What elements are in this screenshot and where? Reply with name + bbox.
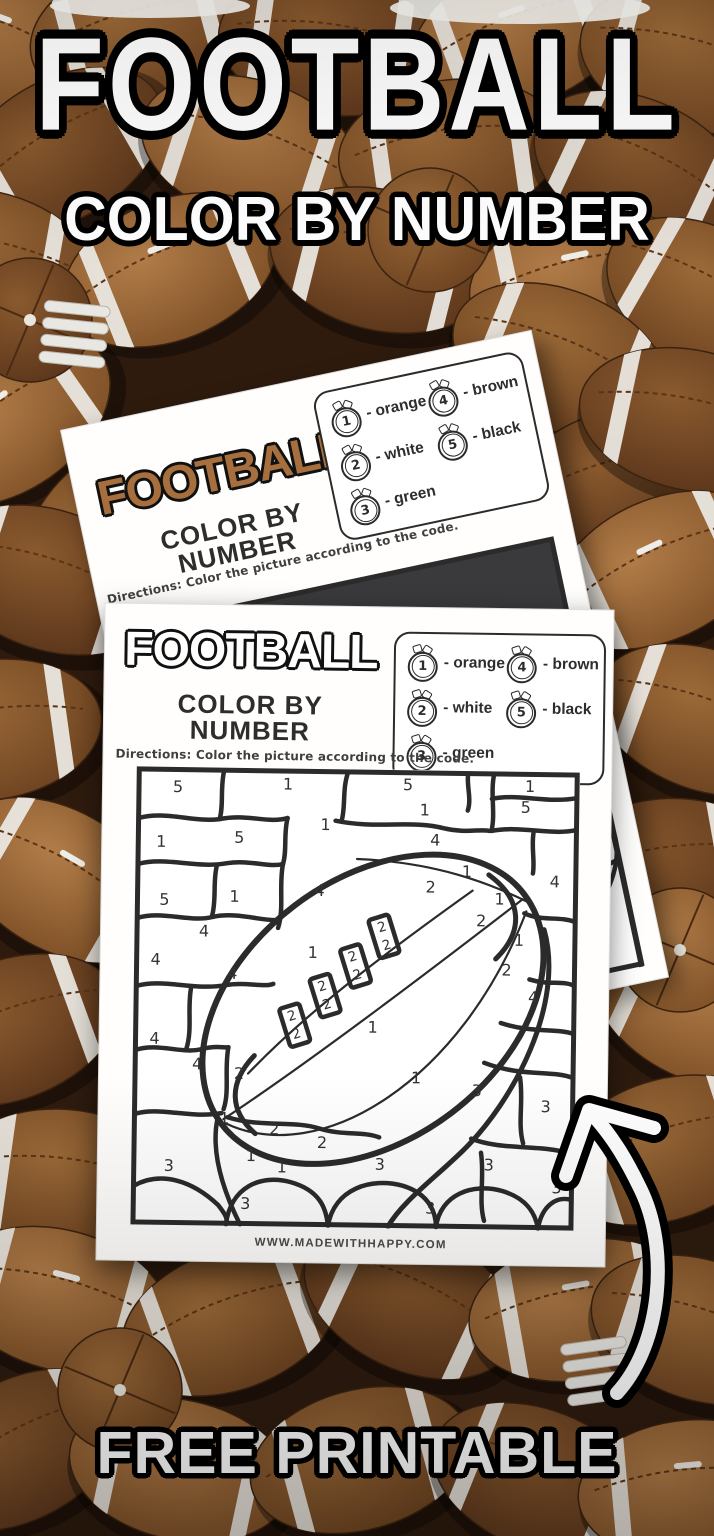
region-number: 3 [240,1194,250,1213]
region-number: 2 [269,1119,279,1138]
region-number: 1 [283,774,293,793]
stopwatch-icon: 5 [504,689,539,729]
region-number: 3 [540,1097,550,1116]
stopwatch-icon: 4 [422,374,464,420]
legend-item: 4 - brown [505,641,600,687]
stopwatch-icon: 4 [505,644,540,684]
region-number: 5 [403,775,413,794]
region-number: 2 [476,911,486,930]
region-number: 1 [229,887,239,906]
region-number: 1 [525,777,535,796]
region-number: 1 [514,931,524,950]
legend-item: 1 - orange [405,640,505,686]
region-number: 1 [494,889,504,908]
region-number: 1 [320,815,330,834]
region-number: 4 [149,1029,159,1048]
region-number: 1 [420,800,430,819]
region-number: 4 [192,1054,202,1073]
region-number: 4 [199,921,209,940]
region-number: 5 [521,798,531,817]
color-key-legend: 1 - orange 2 - white 3 - green 4 - brown… [311,350,552,543]
pin-graphic: FOOTBALL COLOR BY NUMBER FOOTBALL COLOR … [0,0,714,1536]
region-number: 3 [551,1178,561,1197]
stopwatch-icon: 1 [325,395,367,441]
region-number: 4 [227,964,237,983]
stopwatch-icon: 5 [431,419,473,465]
banner-footer: FREE PRINTABLE [0,1424,714,1483]
region-number: 4 [528,988,538,1007]
color-key-legend: 1 - orange 2 - white 3 - green 4 - brown… [392,632,606,786]
region-number: 3 [164,1156,174,1175]
region-number: 3 [472,1081,482,1100]
legend-item: 5 - black [504,686,599,732]
region-number: 4 [550,872,560,891]
region-number: 1 [462,862,472,881]
worksheet-front: FOOTBALL COLOR BY NUMBER 1 - orange 2 - … [95,602,614,1267]
region-number: 1 [411,1068,421,1087]
region-number: 2 [425,877,435,896]
region-number: 1 [156,832,166,851]
region-number: 5 [173,777,183,796]
region-number: 2 [501,961,511,980]
worksheet-subtitle: COLOR BY NUMBER [114,690,387,746]
region-number: 4 [430,831,440,850]
region-number: 5 [234,828,244,847]
legend-item: 2 - white [405,685,505,731]
region-number: 5 [159,890,169,909]
region-number: 2 [317,1133,327,1152]
stopwatch-icon: 2 [334,439,376,485]
region-number: 4 [314,881,324,900]
website-url: WWW.MADEWITHHAPPY.COM [97,1234,605,1253]
region-number: 1 [219,1109,229,1128]
stopwatch-icon: 2 [405,687,440,727]
worksheet-title: FOOTBALL [123,626,380,678]
banner-title: FOOTBALL [11,18,704,150]
stopwatch-icon: 3 [344,484,386,530]
region-number: 2 [234,1064,244,1083]
region-number: 3 [484,1155,494,1174]
coloring-picture: 5151151514142514124141244144213312211333… [130,766,580,1231]
region-number: 3 [425,1199,435,1218]
region-number: 1 [277,1157,287,1176]
stopwatch-icon: 1 [406,642,441,682]
banner-subtitle: COLOR BY NUMBER [0,188,714,251]
region-number: 1 [246,1146,256,1165]
region-number: 4 [150,950,160,969]
region-number: 1 [367,1018,377,1037]
region-number: 3 [375,1155,385,1174]
region-number: 1 [308,943,318,962]
